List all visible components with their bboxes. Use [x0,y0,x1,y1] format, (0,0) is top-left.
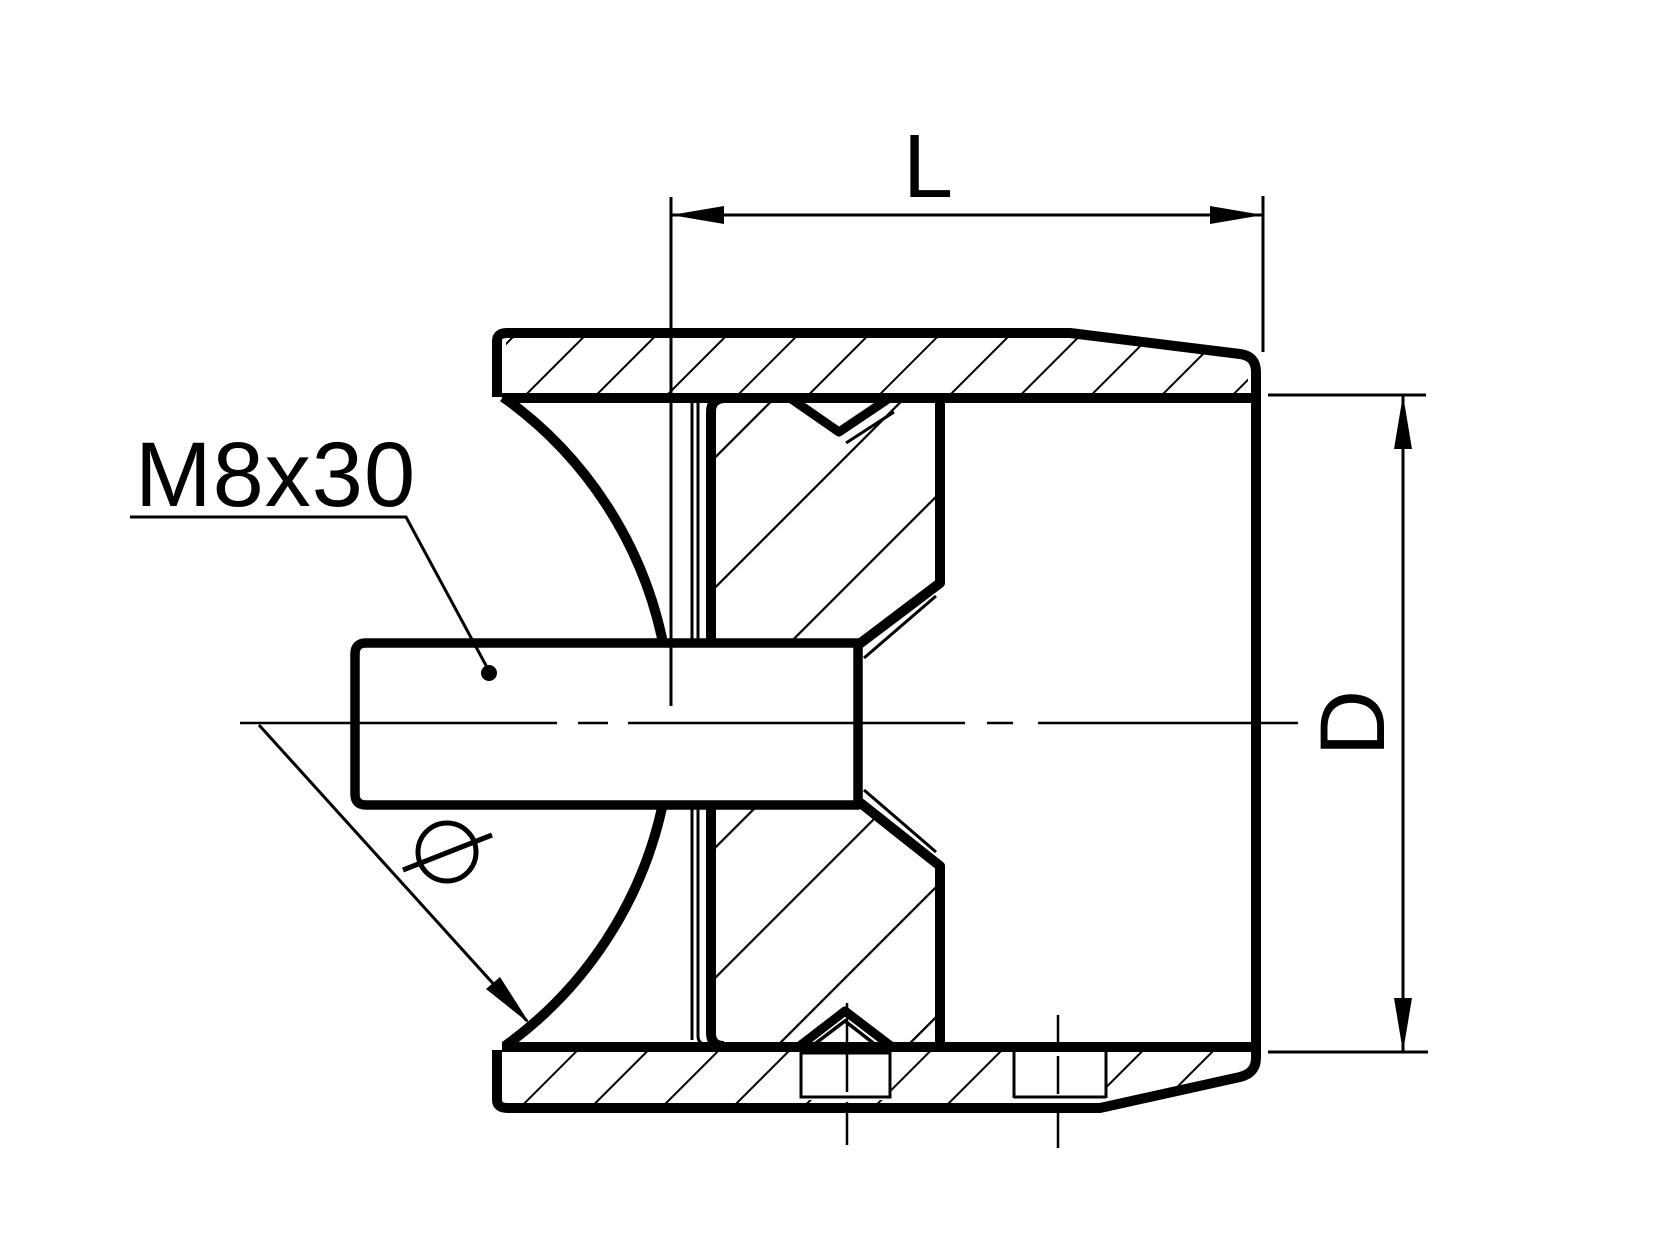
side-hole-cutout [1013,1052,1107,1103]
technical-drawing: M8x30 L D [0,0,1680,1260]
length-label: L [903,117,953,217]
leader-dot [481,665,497,681]
drawing-sheet: M8x30 L D [0,0,1680,1260]
diameter-label: D [1302,690,1404,756]
thread-size-label: M8x30 [135,424,416,526]
